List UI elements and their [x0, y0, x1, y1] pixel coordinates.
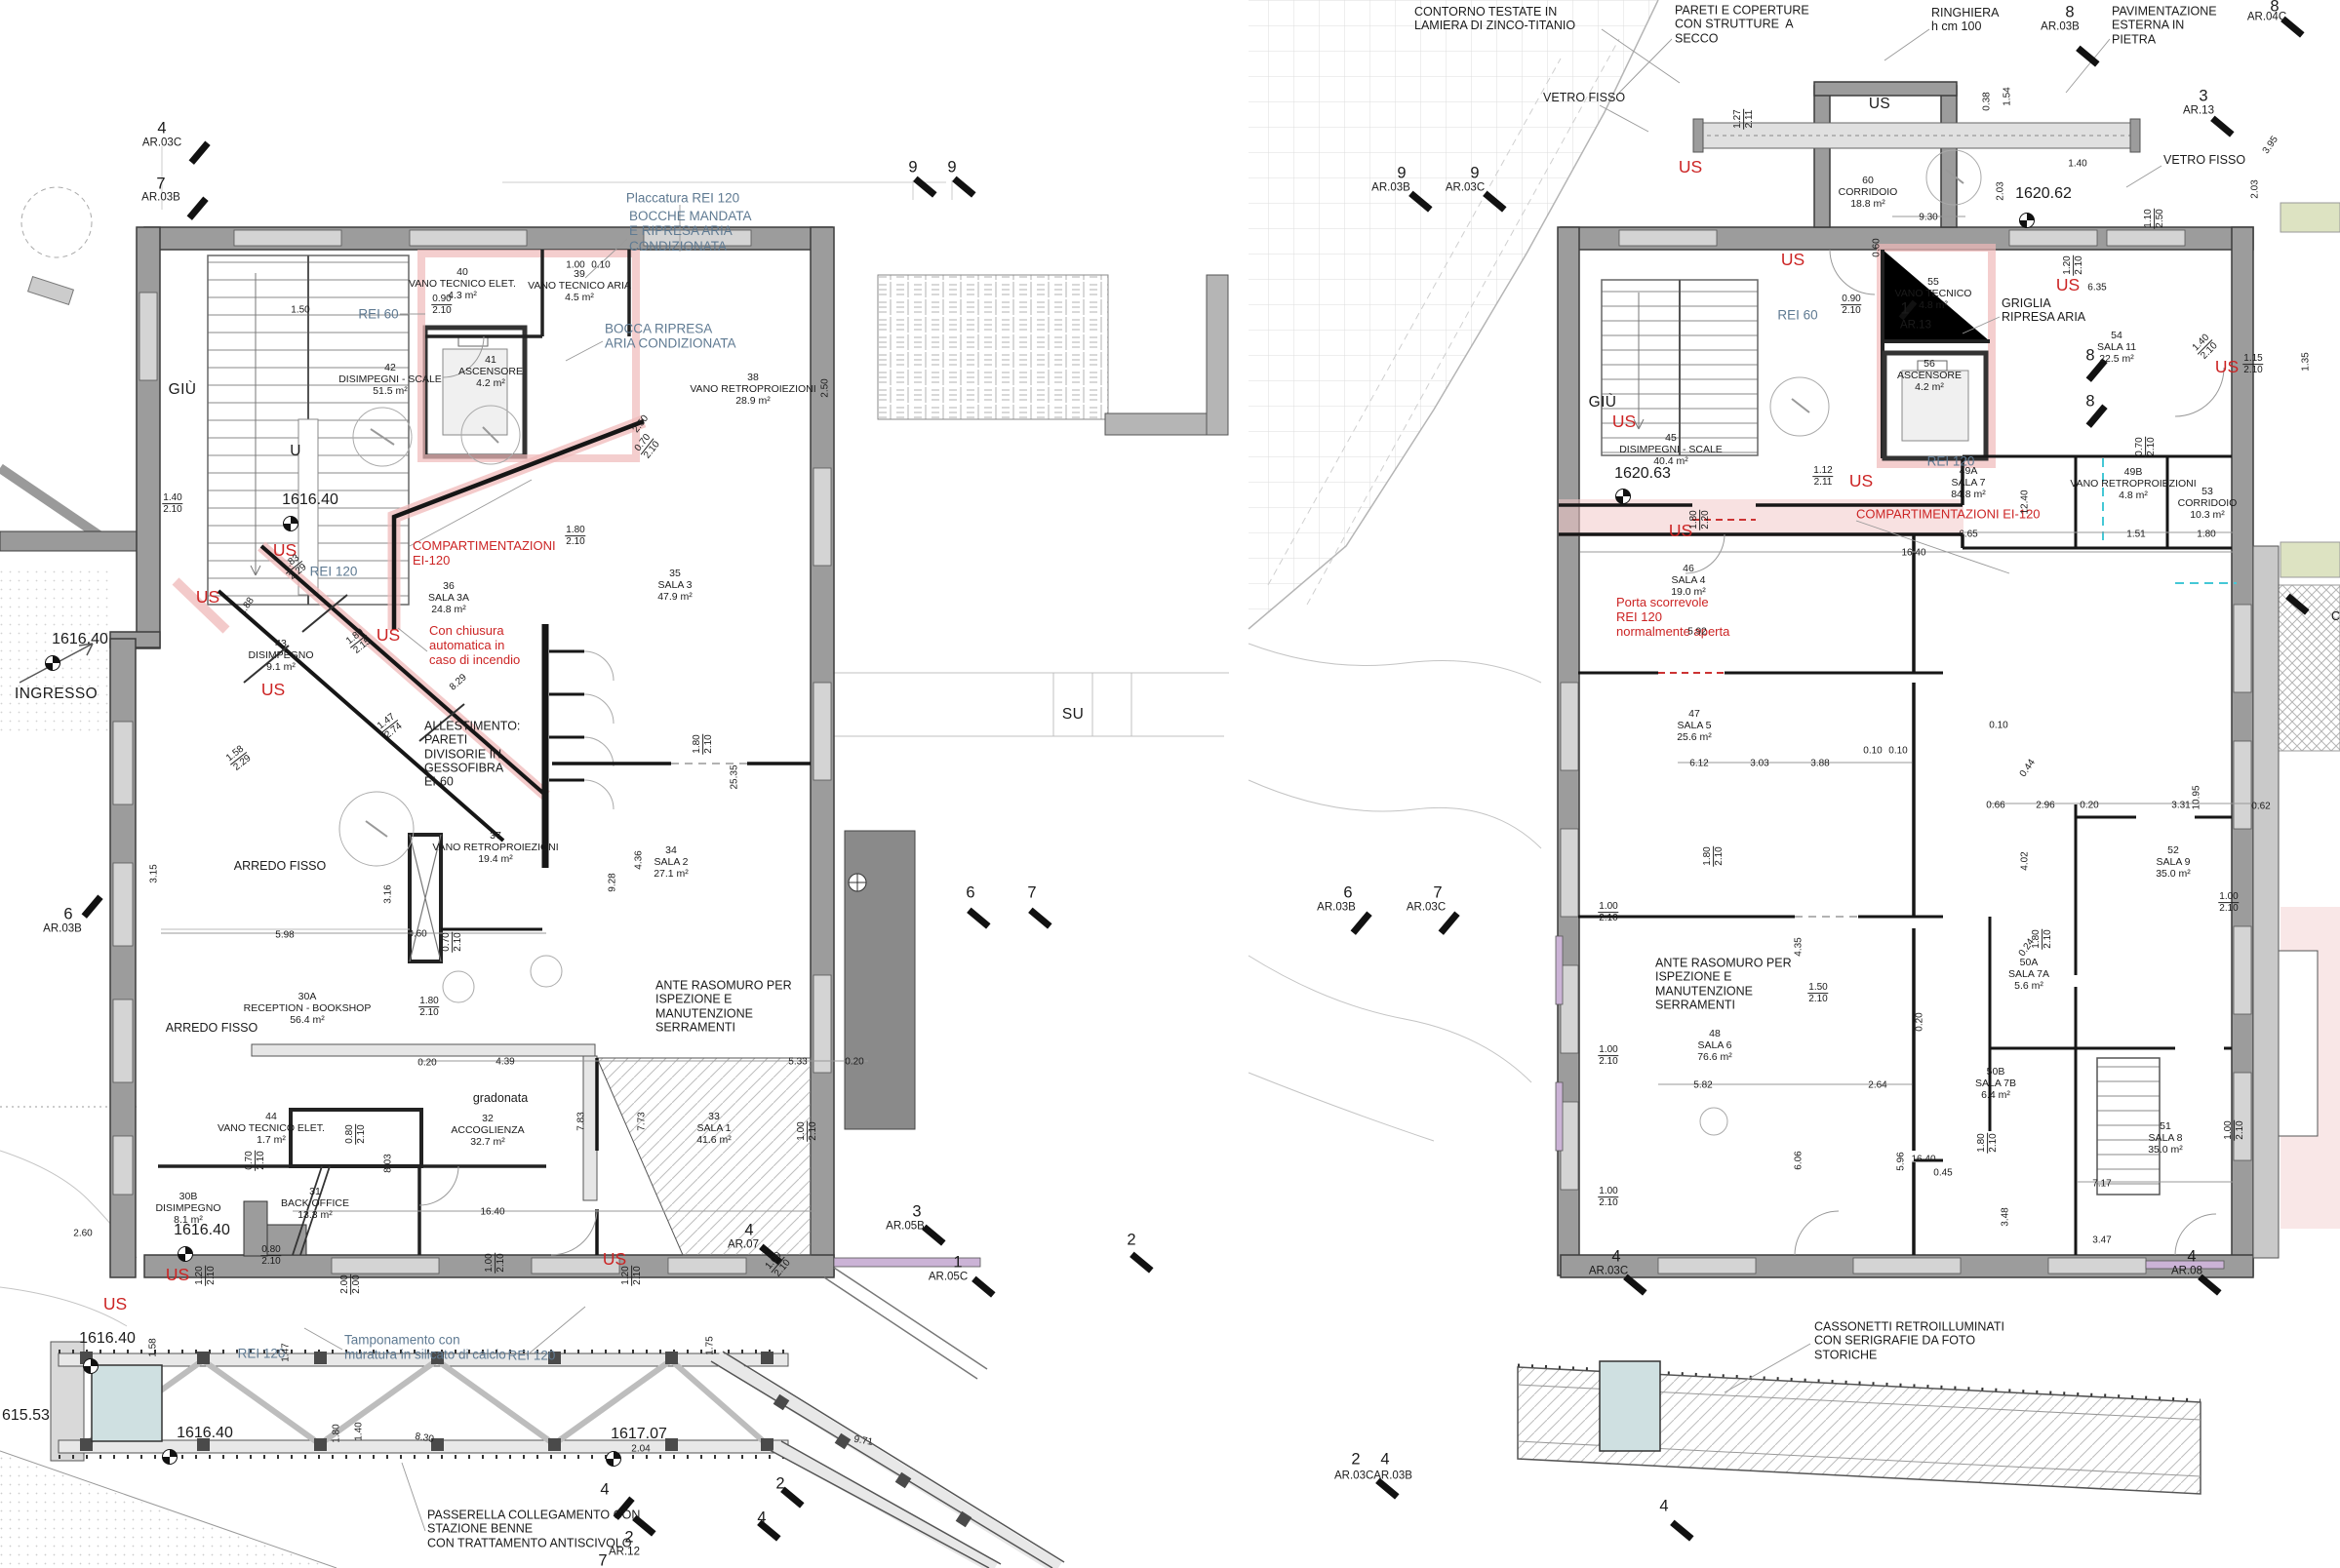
plan-label: gradonata	[473, 1091, 528, 1105]
plan-label: COMPARTIMENTAZIONI EI-120	[413, 539, 556, 568]
plan-label: 1.122.11	[1812, 465, 1833, 489]
plan-label: 32 ACCOGLIENZA 32.7 m²	[451, 1114, 524, 1149]
plan-label: 0.20	[845, 1056, 863, 1067]
plan-label: 6.65	[1959, 529, 1977, 539]
level-marker-icon	[178, 1246, 193, 1262]
plan-label: AR.03C	[1446, 181, 1485, 194]
plan-label: 4.39	[496, 1056, 514, 1067]
plan-label: 46 SALA 4 19.0 m²	[1671, 564, 1706, 599]
plan-label: 2.002.00	[339, 1274, 363, 1294]
plan-label: US	[261, 681, 285, 700]
plan-label: 1.802.20	[1688, 509, 1712, 529]
plan-label: 5.33	[788, 1056, 807, 1067]
plan-label: SU	[1062, 706, 1084, 724]
plan-label: US	[1612, 412, 1636, 432]
plan-label: 3.88	[1810, 758, 1829, 768]
plan-label: US	[1869, 96, 1890, 113]
plan-label: 3.48	[2000, 1207, 2010, 1226]
plan-label: 1.54	[2002, 87, 2012, 105]
plan-label: US	[1849, 472, 1873, 491]
plan-label: 1.202.10	[2062, 255, 2085, 275]
plan-label: 1.402.10	[162, 492, 182, 516]
plan-label: 1.80	[331, 1424, 341, 1442]
plan-label: AR.05B	[886, 1220, 925, 1233]
plan-label: AR.13	[1900, 319, 1931, 332]
plan-label: 7	[1027, 884, 1036, 903]
plan-label: 41 ASCENSORE 4.2 m²	[458, 355, 523, 390]
plan-label: 4	[1380, 1451, 1389, 1470]
plan-label: REI 120	[508, 1348, 556, 1362]
plan-label: US	[377, 626, 400, 646]
plan-label: AR.03C	[1589, 1265, 1628, 1277]
plan-label: 7.83	[575, 1112, 586, 1130]
plan-label: 0.62	[2251, 801, 2270, 811]
plan-label: 8	[2085, 347, 2094, 366]
plan-label: 5.92	[1687, 626, 1706, 637]
plan-label: 9	[1397, 165, 1406, 183]
plan-label: 1.002.10	[1598, 901, 1618, 924]
plan-label: 2.50	[819, 378, 830, 397]
plan-label: 1.002.10	[2223, 1119, 2246, 1140]
plan-label: 4	[744, 1222, 753, 1240]
plan-label: 2.04	[631, 1443, 650, 1454]
plan-label: PARETI E COPERTURE CON STRUTTURE A SECCO	[1675, 4, 1809, 46]
plan-label: 3.03	[1750, 758, 1768, 768]
plan-label: 33 SALA 1 41.6 m²	[696, 1112, 732, 1147]
plan-label: CASSONETTI RETROILLUMINATI CON SERIGRAFI…	[1814, 1320, 2004, 1362]
plan-label: US	[1679, 158, 1702, 177]
plan-label: AR.03C	[142, 137, 181, 149]
plan-label: 6.06	[1793, 1151, 1804, 1169]
plan-label: 44 VANO TECNICO ELET. 1.7 m²	[218, 1112, 325, 1147]
plan-label: 1620.63	[1614, 465, 1671, 483]
plan-label: COMPARTIMENTAZIONI EI-120	[1856, 508, 2041, 523]
plan-label: 0.702.10	[441, 931, 464, 952]
floor-plan-canvas: 4AR.03C7AR.03B996AR.03B673AR.05B1AR.05C2…	[0, 0, 2340, 1568]
plan-label: U	[290, 443, 301, 460]
plan-label: 34 SALA 2 27.1 m²	[654, 845, 689, 881]
plan-label: 4	[1659, 1498, 1668, 1516]
plan-label: 30A RECEPTION - BOOKSHOP 56.4 m²	[244, 992, 372, 1027]
plan-label: 2.03	[1995, 181, 2005, 200]
plan-label: VETRO FISSO	[2163, 153, 2245, 167]
plan-label: 1	[953, 1254, 962, 1273]
plan-label: US	[2056, 276, 2080, 295]
plan-label: 3	[2199, 88, 2207, 106]
plan-label: 1620.62	[2015, 185, 2072, 203]
plan-label: 4.35	[1793, 937, 1804, 956]
plan-label: 6	[966, 884, 974, 903]
plan-label: 12.40	[2019, 490, 2030, 514]
plan-label: 51 SALA 8 35.0 m²	[2148, 1121, 2183, 1156]
plan-label: AR.03CAR.03B	[1334, 1470, 1412, 1482]
plan-label: 1616.40	[177, 1425, 233, 1442]
plan-label: 40 VANO TECNICO ELET. 4.3 m²	[409, 267, 516, 302]
plan-label: 1.802.10	[1976, 1132, 2000, 1153]
right-edge-fixtures	[2253, 203, 2340, 1258]
plan-label: 5.96	[1895, 1152, 1906, 1170]
terrain-terraces	[1249, 0, 1658, 1141]
plan-label: 4	[600, 1481, 609, 1500]
plan-label: 8	[2085, 393, 2094, 412]
plan-label: 38 VANO RETROPROIEZIONI 28.9 m²	[690, 372, 815, 408]
plan-label: 1.002.10	[1598, 1186, 1618, 1209]
plan-label: 60 CORRIDOIO 18.8 m²	[1839, 176, 1898, 211]
plan-label: 3.15	[148, 864, 159, 882]
plan-label: 3.16	[382, 884, 393, 903]
plan-label: Tamponamento con muratura in silicato di…	[344, 1333, 506, 1363]
plan-label: 16.40	[1911, 1154, 1935, 1164]
plan-label: 7	[598, 1552, 607, 1568]
level-marker-icon	[162, 1449, 178, 1465]
plan-label: 9	[947, 159, 956, 177]
plan-label: 50A SALA 7A 5.6 m²	[2008, 958, 2049, 993]
plan-label: COR	[2331, 609, 2340, 623]
plan-label: 0.38	[1981, 92, 1992, 110]
plan-label: 2	[1127, 1232, 1135, 1250]
plan-label: 7	[1433, 884, 1442, 903]
plan-label: REI 60	[358, 306, 398, 321]
plan-label: 49A SALA 7 84.8 m²	[1951, 466, 1986, 501]
plan-label: 1.202.10	[194, 1265, 218, 1285]
level-marker-icon	[45, 655, 60, 671]
plan-label: 4	[157, 120, 166, 138]
plan-label: 2	[1351, 1451, 1360, 1470]
plan-label: 56 ASCENSORE 4.2 m²	[1897, 359, 1962, 394]
plan-label: 54 SALA 11 22.5 m²	[2097, 331, 2136, 366]
level-marker-icon	[606, 1451, 621, 1467]
plan-label: ANTE RASOMURO PER ISPEZIONE E MANUTENZIO…	[655, 979, 792, 1035]
plan-label: 39 VANO TECNICO ARIA 4.5 m²	[528, 269, 631, 304]
plan-label: 4	[757, 1509, 766, 1528]
plan-label: AR.03B	[141, 191, 180, 204]
plan-label: ARREDO FISSO	[166, 1021, 258, 1035]
plan-label: REI 60	[1777, 307, 1817, 322]
plan-label: 8	[2065, 4, 2074, 22]
plan-label: 2.03	[2249, 179, 2260, 198]
plan-label: 6.12	[1689, 758, 1708, 768]
plan-label: 1.802.10	[565, 525, 585, 548]
plan-label: 31 BACK OFFICE 13.3 m²	[281, 1187, 349, 1222]
plan-label: ALLESTIMENTO: PARETI DIVISORIE IN GESSOF…	[424, 719, 520, 788]
plan-label: INGRESSO	[15, 686, 98, 703]
plan-label: AR.03B	[2041, 20, 2080, 33]
plan-label: 2	[775, 1475, 784, 1494]
plan-label: AR.07	[728, 1238, 759, 1251]
plan-label: 1.002.10	[484, 1252, 507, 1273]
plan-label: AR.03B	[1371, 181, 1410, 194]
plan-label: 615.53	[2, 1407, 50, 1425]
plan-label: 0.902.10	[1841, 294, 1861, 317]
plan-label: 52 SALA 9 35.0 m²	[2156, 845, 2191, 881]
plan-label: PAVIMENTAZIONE ESTERNA IN PIETRA	[2112, 5, 2217, 47]
plan-label: 0.60	[1871, 238, 1882, 256]
plan-label: 1.75	[704, 1336, 715, 1354]
level-marker-icon	[2019, 213, 2035, 228]
plan-label: 1.80	[2197, 529, 2215, 539]
plan-label: 9	[908, 159, 917, 177]
plan-label: 1.802.10	[1702, 845, 1725, 866]
plan-label: 42 DISIMPEGNI - SCALE 51.5 m²	[338, 363, 442, 398]
plan-label: 1.272.11	[1732, 108, 1756, 129]
plan-label: 25.35	[729, 764, 739, 789]
plan-label: 9	[1470, 165, 1479, 183]
right-dock	[1518, 1361, 2201, 1494]
plan-label: 1617.07	[611, 1426, 667, 1443]
plan-label: 0.45	[1933, 1167, 1952, 1178]
plan-label: 4.36	[633, 850, 644, 869]
plan-label: 0.20	[417, 1057, 436, 1068]
plan-label: 2.60	[73, 1228, 92, 1238]
plan-label: 50B SALA 7B 6.4 m²	[1975, 1067, 2016, 1102]
plan-label: 7.17	[2092, 1178, 2111, 1189]
plan-label: BOCCHE MANDATA E RIPRESA ARIA CONDIZIONA…	[629, 209, 752, 254]
plan-label: US	[166, 1266, 189, 1285]
plan-label: 4	[2187, 1248, 2196, 1267]
plan-label: 5.82	[1693, 1079, 1712, 1090]
plan-label: 1.40	[2068, 158, 2086, 169]
plan-label: AR.08	[2171, 1265, 2202, 1277]
plan-label: Placcatura REI 120	[626, 190, 739, 205]
plan-label: GIÙ	[169, 381, 197, 399]
plan-label: Porta scorrevole REI 120 normalmente ape…	[1616, 596, 1729, 639]
plan-label: 0.902.10	[431, 294, 452, 317]
plan-label: 1.51	[2126, 529, 2145, 539]
level-marker-icon	[1615, 489, 1631, 504]
plan-label: AR.03C	[1407, 901, 1446, 914]
plan-label: 3.31	[2171, 800, 2190, 810]
plan-label: 1.002.10	[796, 1120, 819, 1141]
plan-label: 0.10	[1863, 745, 1882, 756]
plan-label: 1.202.10	[620, 1265, 644, 1285]
plan-label: ARREDO FISSO	[234, 859, 326, 873]
plan-label: 6	[1343, 884, 1352, 903]
plan-label: AR.03B	[43, 922, 82, 935]
plan-label: 47 SALA 5 25.6 m²	[1677, 709, 1712, 744]
plan-label: 36 SALA 3A 24.8 m²	[428, 581, 469, 616]
plan-label: 0.66	[1986, 800, 2004, 810]
plan-label: 3	[912, 1203, 921, 1222]
plan-label: US	[2215, 358, 2239, 377]
plan-label: 43 DISIMPEGNO 9.1 m²	[248, 639, 313, 674]
plan-label: GRIGLIA RIPRESA ARIA	[2002, 296, 2085, 325]
plan-label: 1.47	[280, 1343, 291, 1361]
plan-label: 1616.40	[174, 1222, 230, 1239]
plan-label: US	[1781, 251, 1805, 270]
plan-label: BOCCA RIPRESA ARIA CONDIZIONATA	[605, 322, 736, 352]
plan-label: 1.002.10	[2218, 891, 2239, 915]
plan-label: GIÙ	[1589, 394, 1617, 412]
plan-label: PASSERELLA COLLEGAMENTO CON STAZIONE BEN…	[427, 1509, 640, 1550]
plan-label: 1.00	[566, 259, 584, 270]
plan-label: 0.20	[1914, 1012, 1924, 1031]
plan-label: 45 DISIMPEGNI - SCALE 40.4 m²	[1619, 433, 1723, 468]
plan-label: 2.64	[1868, 1079, 1886, 1090]
plan-label: 1.152.10	[2242, 353, 2263, 376]
plan-label: 5.98	[275, 929, 294, 940]
plan-label: 0.20	[2080, 800, 2098, 810]
plan-label: 1.102.50	[2143, 208, 2166, 228]
plan-label: AR.05C	[929, 1271, 968, 1283]
plan-label: AR.03B	[1317, 901, 1356, 914]
plan-label: 3.47	[2092, 1235, 2111, 1245]
plan-label: 1.35	[2300, 352, 2311, 371]
plan-label: 4.02	[2019, 851, 2030, 870]
plan-label: 7.73	[636, 1112, 647, 1130]
plan-label: 1.50	[291, 304, 309, 315]
plan-label: 16.40	[480, 1206, 504, 1217]
plan-label: CONTORNO TESTATE IN LAMIERA DI ZINCO-TIT…	[1414, 5, 1575, 33]
level-marker-icon	[283, 516, 298, 531]
plan-label: 0.702.10	[244, 1150, 267, 1170]
plan-label: 0.802.10	[344, 1123, 368, 1144]
plan-label: 1616.40	[282, 491, 338, 509]
plan-label: 1616.40	[52, 631, 108, 648]
plan-label: 9.30	[1919, 212, 1937, 222]
plan-label: 37 VANO RETROPROIEZIONI 19.4 m²	[432, 831, 558, 866]
plan-label: 0.10	[1989, 720, 2007, 730]
plan-label: ANTE RASOMURO PER ISPEZIONE E MANUTENZIO…	[1655, 957, 1792, 1012]
plan-label: 1.502.10	[1807, 982, 1828, 1005]
plan-label: REI 120	[310, 564, 358, 578]
plan-label: REI 120	[238, 1346, 286, 1360]
plan-label: 0.702.10	[2134, 436, 2158, 456]
plan-label: 53 CORRIDOIO 10.3 m²	[2178, 487, 2238, 522]
plan-label: 1.40	[353, 1422, 364, 1440]
plan-label: RINGHIERA h cm 100	[1931, 6, 1999, 34]
plan-label: 1616.40	[79, 1330, 136, 1348]
plan-label: AR.13	[2183, 104, 2214, 117]
plan-label: US	[103, 1295, 127, 1314]
plan-label: 6	[63, 906, 72, 924]
plan-label: AR.04C	[2247, 11, 2286, 23]
plan-label: 4	[1611, 1248, 1620, 1267]
level-marker-icon	[83, 1358, 99, 1374]
plan-label: 0.60	[408, 928, 426, 939]
plan-label: 8.03	[382, 1154, 393, 1172]
plan-label: 1.802.10	[692, 733, 715, 754]
plan-label: Con chiusura automatica in caso di incen…	[429, 624, 520, 667]
plan-label: US	[196, 588, 219, 608]
plan-label: 6.35	[2087, 282, 2106, 293]
plan-label: 10.95	[2191, 785, 2201, 809]
plan-label: 48 SALA 6 76.6 m²	[1697, 1029, 1732, 1064]
plan-label: 2.96	[2036, 800, 2054, 810]
plan-label: VETRO FISSO	[1543, 91, 1625, 104]
plan-label: 1.802.10	[418, 996, 439, 1019]
plan-label: 9.28	[607, 873, 617, 891]
plan-label: 0.10	[591, 259, 610, 270]
plan-label: 16.40	[1901, 547, 1925, 558]
plan-label: 0.10	[1888, 745, 1907, 756]
plan-label: 1.002.10	[1598, 1044, 1618, 1068]
plan-label: 1	[1900, 300, 1909, 319]
plan-label: 0.802.10	[260, 1244, 281, 1268]
plan-label: 1.58	[147, 1338, 158, 1356]
plan-label: 35 SALA 3 47.9 m²	[657, 568, 693, 604]
